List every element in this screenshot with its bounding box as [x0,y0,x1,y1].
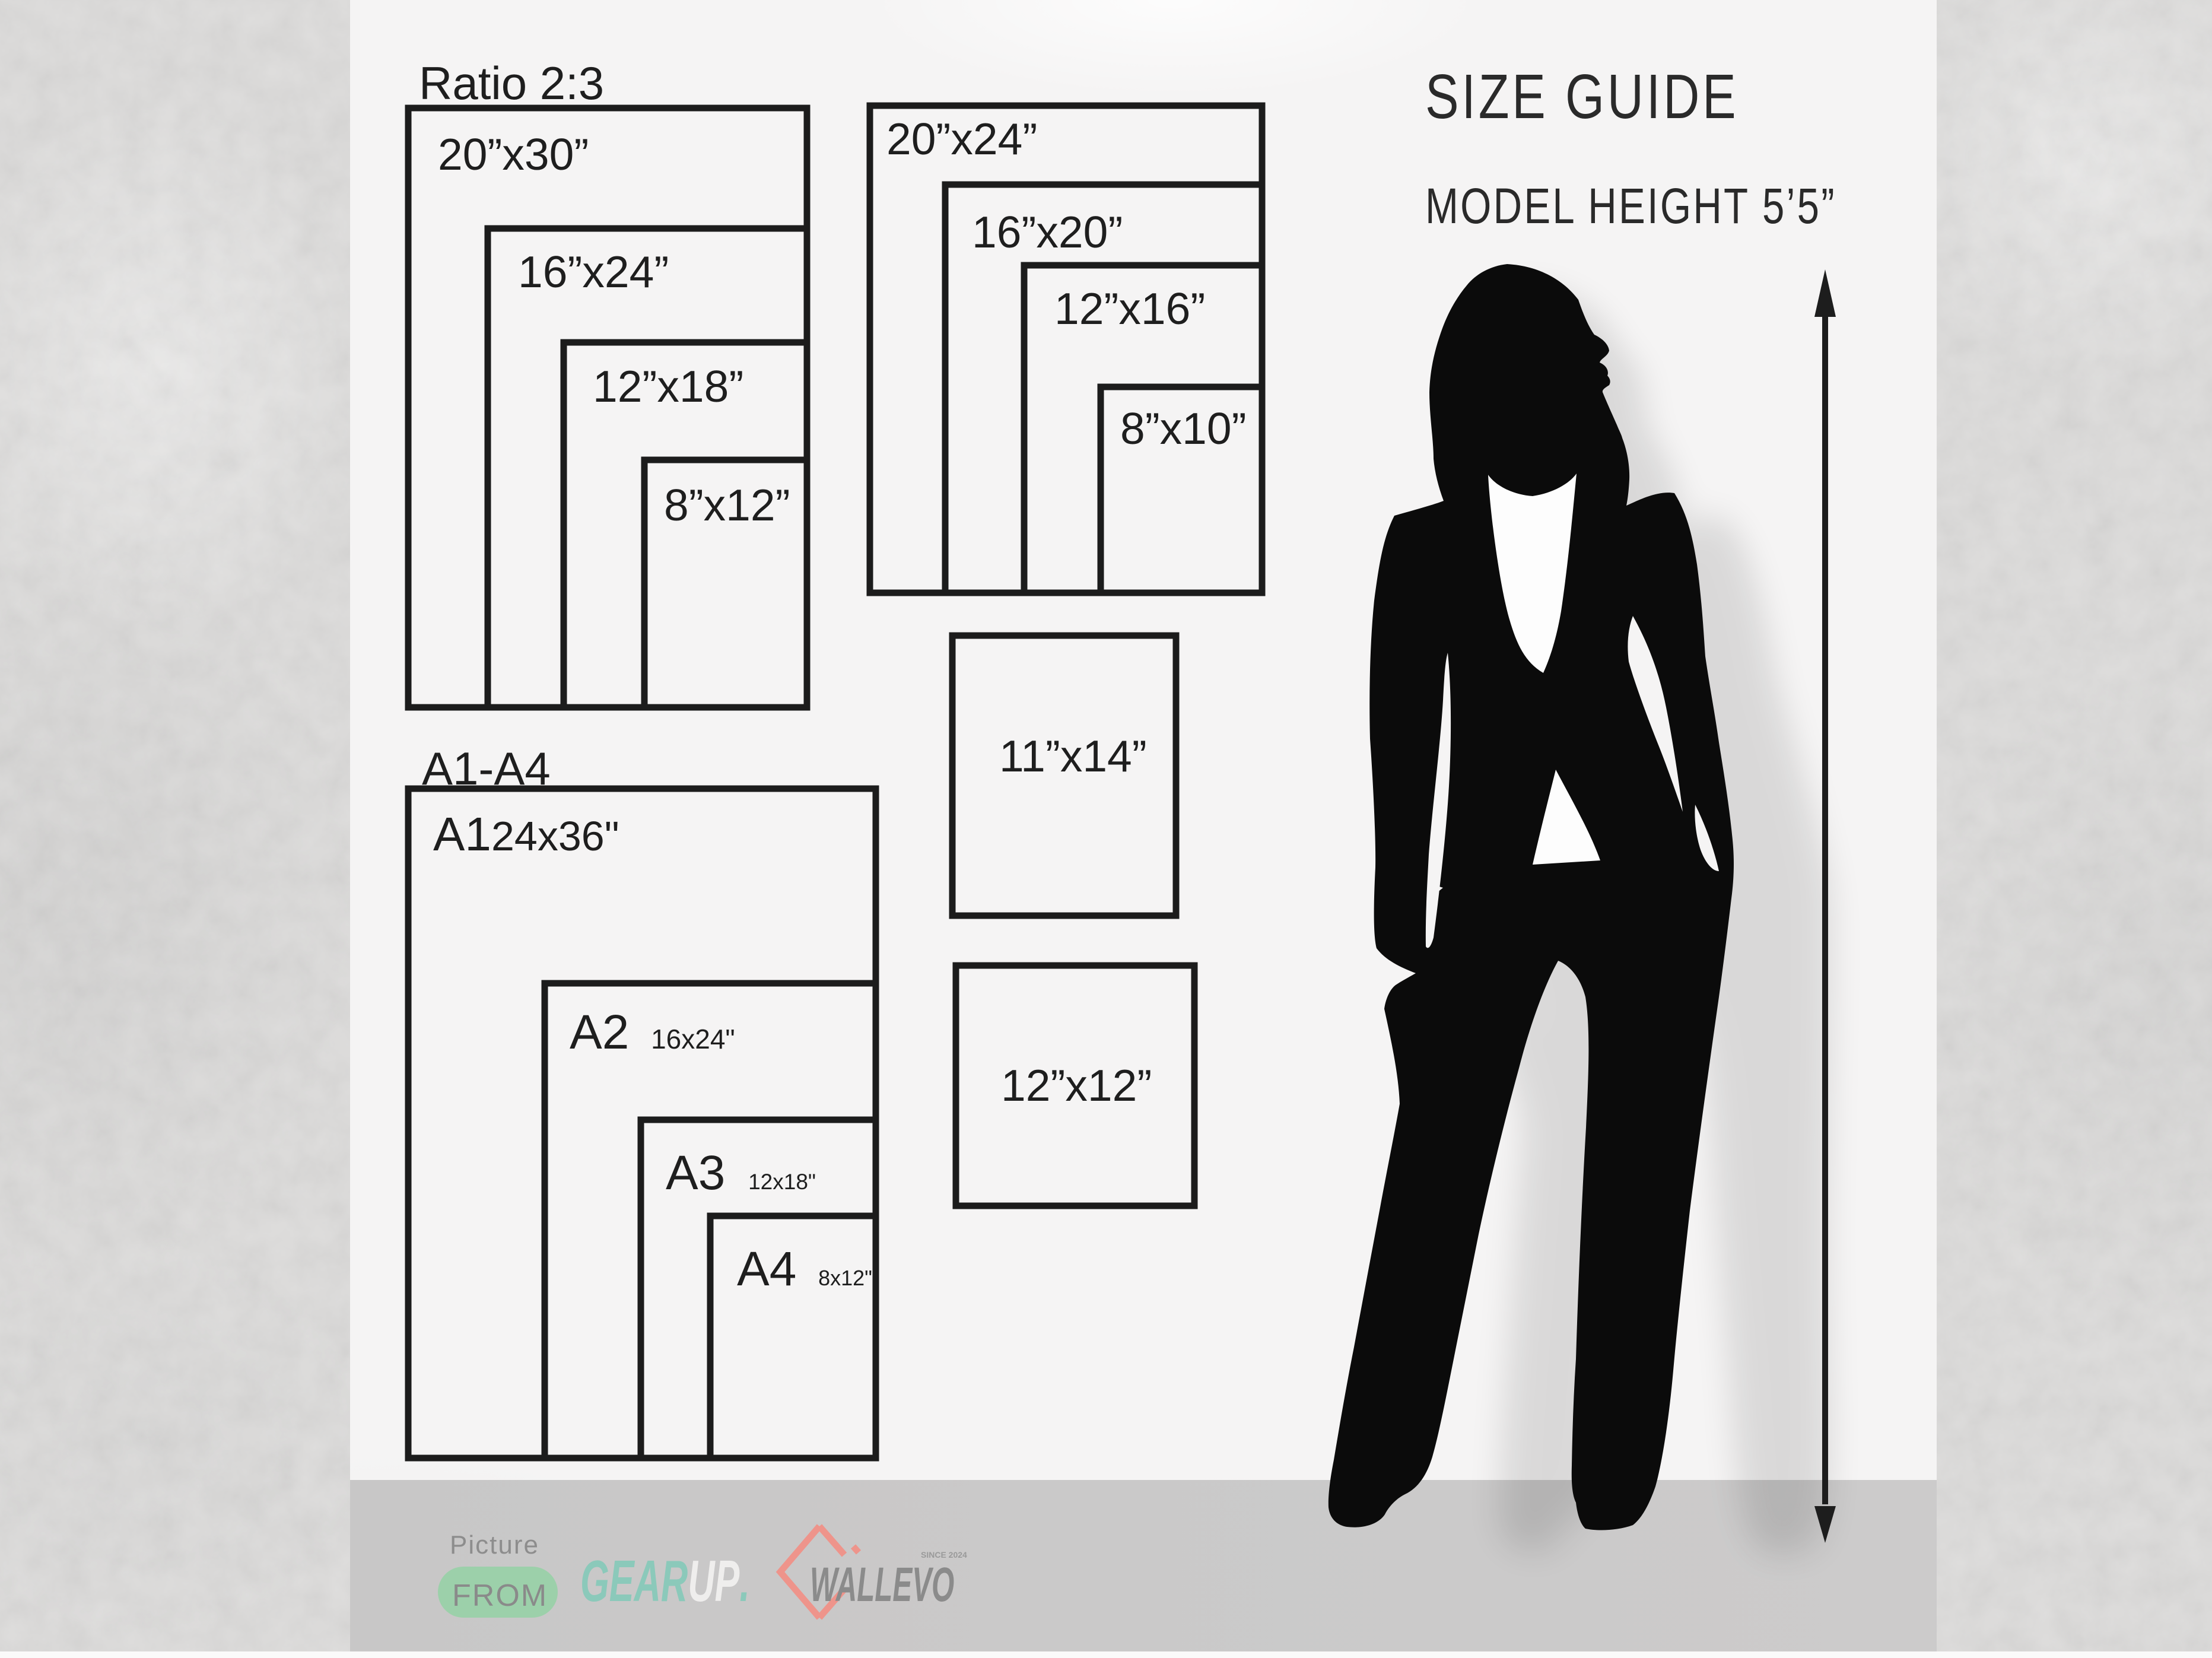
svg-text:WALLEVO: WALLEVO [810,1558,954,1612]
svg-text:8”x10”: 8”x10” [1120,404,1247,453]
svg-text:20”x30”: 20”x30” [438,129,589,179]
svg-text:A124x36": A124x36" [433,808,619,860]
svg-text:A4 8x12": A4 8x12" [737,1242,872,1296]
svg-text:SIZE GUIDE: SIZE GUIDE [1425,62,1739,132]
svg-text:A2 16x24": A2 16x24" [570,1005,735,1059]
svg-text:FROM: FROM [452,1578,548,1613]
svg-text:12”x16”: 12”x16” [1054,284,1205,333]
svg-text:12”x12”: 12”x12” [1001,1060,1152,1110]
svg-text:16”x20”: 16”x20” [972,207,1123,257]
svg-text:8”x12”: 8”x12” [664,480,790,530]
svg-text:11”x14”: 11”x14” [999,731,1147,781]
svg-text:12”x18”: 12”x18” [593,361,743,411]
svg-text:MODEL HEIGHT 5’5”: MODEL HEIGHT 5’5” [1425,179,1836,234]
svg-text:SINCE 2024: SINCE 2024 [921,1550,967,1559]
svg-text:Ratio 2:3: Ratio 2:3 [419,57,604,109]
svg-text:20”x24”: 20”x24” [886,114,1037,164]
svg-text:A3 12x18": A3 12x18" [666,1146,816,1200]
svg-text:16”x24”: 16”x24” [518,247,669,297]
svg-text:Picture: Picture [450,1530,539,1559]
svg-text:GEARUP.: GEARUP. [580,1549,750,1613]
